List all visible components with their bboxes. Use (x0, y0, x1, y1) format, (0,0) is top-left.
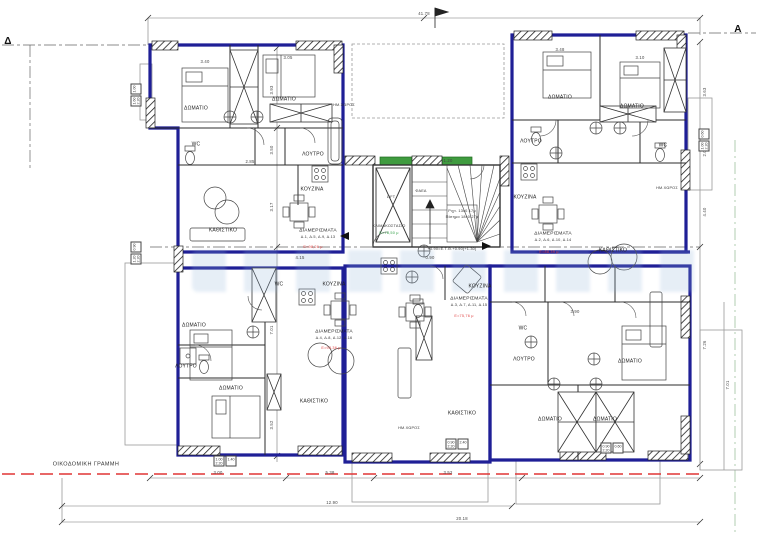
room-label-bath: ΛΟΥΤΡΟ (175, 365, 197, 370)
dim-interior: 0.90 (426, 256, 435, 260)
apartment-area: Ε=93,36 μ (321, 347, 340, 351)
room-label-wc: WC (275, 283, 284, 288)
watermark (192, 250, 710, 292)
stairwell-area: Ε=78,50 μ (379, 232, 398, 236)
dim-top-total: 41.78 (418, 12, 429, 16)
axis-lines (2, 33, 756, 247)
room-label-wc: WC (192, 143, 201, 148)
room-label-bedroom: ΔΩΜΑΤΙΟ (272, 98, 296, 103)
dim-interior: 4.15 (296, 256, 305, 260)
room-label-living: ΚΑΘΙΣΤΙΚΟ (448, 412, 476, 417)
dim-right: 4.40 (703, 208, 707, 217)
dim-interior: 3.10 (636, 56, 645, 60)
dim-right: 7.26 (703, 341, 707, 350)
room-label-semi-open: ΗΜ.ΧΩΡΟΣ (398, 427, 420, 431)
dim-right: 3.63 (703, 88, 707, 97)
room-label-kitchen: ΚΟΥΖΙΝΑ (513, 196, 536, 201)
dim-interior: 3.48 (556, 48, 565, 52)
dim-interior: 3.90 (571, 310, 580, 314)
dim-bottom: 12.90 (326, 501, 337, 505)
apartment-title: ΔΙΑΜΕΡΙΣΜΑΤΑ (534, 233, 571, 238)
dim-bottom: 20.18 (456, 517, 467, 521)
apartment-units: Δ.4, Δ.8, Δ.12, Δ.16 (316, 337, 353, 341)
room-label-bedroom: ΔΩΜΑΤΙΟ (618, 360, 642, 365)
stair-direction-arrow (426, 200, 434, 244)
room-label-living: ΚΑΘΙΣΤΙΚΟ (300, 400, 328, 405)
apartment-units: Δ.3, Δ.7, Δ.11, Δ.15 (451, 304, 487, 308)
dim-left: 7.01 (270, 326, 274, 335)
level-note: +0.90=Ε.Τ.Θ.+0.90(+1.30) (428, 248, 477, 252)
room-label-kitchen: ΚΟΥΖΙΝΑ (300, 188, 323, 193)
window-tag: 1.002.20 1.40 (214, 456, 237, 467)
room-label-living: ΚΑΘΙΣΤΙΚΟ (209, 229, 237, 234)
apartment-units: Δ.1, Δ.5, Δ.9, Δ.13 (301, 236, 335, 240)
stairwell-label: ΚΛΙΜΑΚΟΣΤΑΣΙΟ (372, 225, 405, 229)
room-label-wc: WC (519, 327, 528, 332)
dim-left: 3.93 (270, 86, 274, 95)
section-marker-left: Δ (4, 37, 11, 47)
lift-label: LIFT (387, 196, 396, 200)
floor-plan-drawing: Δ A ΟΙΚΟΔΟΜΙΚΗ ΓΡΑΜΜΗ ΔΩΜΑΤΙΟ ΔΩΜΑΤΙΟ ΔΩ… (0, 0, 758, 535)
dim-interior: 3.05 (284, 56, 293, 60)
dim-left: 3.52 (270, 421, 274, 430)
dim-bottom: 3.52 (444, 471, 453, 475)
window-tag: 1.202.20 0.90 (131, 242, 142, 265)
dim-interior: 2.85 (246, 160, 255, 164)
building-line-label: ΟΙΚΟΔΟΜΙΚΗ ΓΡΑΜΜΗ (53, 462, 119, 468)
stair-note-riser: Ριχτ. 13x0.17μ (448, 210, 475, 214)
window-tag: 1.002.20 0.60 (699, 129, 710, 152)
stair-note-tread: Πάτημα 18x0.27μ (446, 216, 479, 220)
stair-treads (412, 165, 500, 242)
room-label-bedroom: ΔΩΜΑΤΙΟ (182, 324, 206, 329)
room-label-bedroom: ΔΩΜΑΤΙΟ (219, 387, 243, 392)
room-label-bedroom: ΔΩΜΑΤΙΟ (620, 105, 644, 110)
apartment-title: ΔΙΑΜΕΡΙΣΜΑΤΑ (299, 230, 336, 235)
window-tag: 1.602.20 1.00 (131, 84, 142, 107)
dim-right: 7.01 (726, 381, 730, 390)
apartment-title: ΔΙΑΜΕΡΙΣΜΑΤΑ (315, 331, 352, 336)
apartment-area: Ε=98,26 μ (303, 246, 322, 250)
dim-interior: 1.20 (444, 159, 453, 163)
room-label-bath: ΛΟΥΤΡΟ (520, 140, 542, 145)
room-label-kitchen: ΚΟΥΖΙΝΑ (322, 283, 345, 288)
apartment-area: Ε=88,39 μ (539, 251, 558, 255)
dim-left: 3.17 (270, 203, 274, 212)
window-tag: 0.902.20 2.40 (446, 439, 469, 450)
dim-bottom: 5.38 (326, 471, 335, 475)
room-label-bath: ΛΟΥΤΡΟ (302, 153, 324, 158)
room-label-living: ΚΑΘΙΣΤΙΚΟ (599, 249, 627, 254)
apartment-title: ΔΙΑΜΕΡΙΣΜΑΤΑ (450, 298, 487, 303)
room-label-bath: ΛΟΥΤΡΟ (513, 358, 535, 363)
dim-left: 3.50 (270, 146, 274, 155)
window-tag: 0.902.20 0.60 (601, 443, 624, 454)
dim-interior: 3.40 (201, 60, 210, 64)
room-label-semi-open: ΗΜ.ΧΩΡΟΣ (333, 104, 355, 108)
room-label-bedroom: ΔΩΜΑΤΙΟ (184, 107, 208, 112)
shaft-label: ΦΑΕΑ (415, 190, 426, 194)
apartment-units: Δ.2, Δ.6, Δ.10, Δ.14 (535, 239, 572, 243)
room-label-wc: WC (659, 144, 668, 149)
room-label-semi-open: ΗΜ.ΧΩΡΟΣ (656, 187, 678, 191)
apartment-area: Ε=75,76 μ (454, 315, 473, 319)
room-label-bedroom: ΔΩΜΑΤΙΟ (593, 418, 617, 423)
room-label-bedroom: ΔΩΜΑΤΙΟ (548, 96, 572, 101)
room-label-bedroom: ΔΩΜΑΤΙΟ (538, 418, 562, 423)
section-marker-right: A (734, 25, 741, 35)
room-label-kitchen: ΚΟΥΖΙΝΑ (468, 285, 491, 290)
dim-bottom: 3.00 (214, 471, 223, 475)
